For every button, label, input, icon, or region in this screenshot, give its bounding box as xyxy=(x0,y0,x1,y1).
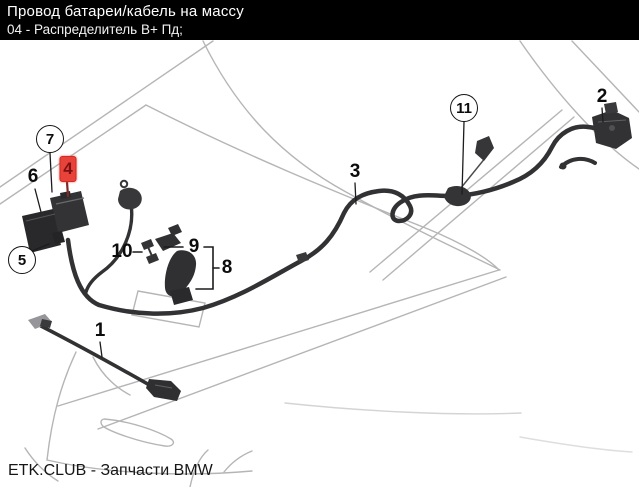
page-title: Провод батареи/кабель на массу xyxy=(7,3,244,20)
leader-7 xyxy=(50,153,52,192)
callout-4-highlighted[interactable]: 4 xyxy=(60,156,77,182)
harness-junction xyxy=(444,186,471,206)
leader-4-stem xyxy=(67,182,68,196)
clamp-part-9 xyxy=(155,233,181,251)
page-subtitle: 04 - Распределитель B+ Пд; xyxy=(7,22,183,37)
parts-diagram-canvas xyxy=(0,0,639,487)
leader-1 xyxy=(100,342,102,357)
header-bar: Провод батареи/кабель на массу 04 - Расп… xyxy=(0,0,639,40)
callout-6[interactable]: 6 xyxy=(28,166,39,188)
callout-1[interactable]: 1 xyxy=(95,320,106,342)
callout-5[interactable]: 5 xyxy=(8,246,36,274)
cable-1-connector xyxy=(146,379,181,401)
clip-part-10 xyxy=(141,239,154,250)
ring-connector xyxy=(118,188,142,210)
car-outline xyxy=(0,41,639,487)
callout-2[interactable]: 2 xyxy=(597,86,608,108)
callout-11[interactable]: 11 xyxy=(450,94,478,122)
callout-7[interactable]: 7 xyxy=(36,125,64,153)
leader-11 xyxy=(462,122,464,194)
clip-part-11-area xyxy=(475,136,494,161)
callout-9[interactable]: 9 xyxy=(189,236,200,258)
strap-eyelet xyxy=(560,163,567,170)
watermark-text: ETK.CLUB - Запчасти BMW xyxy=(8,462,213,480)
callout-3[interactable]: 3 xyxy=(350,161,361,183)
leader-lines xyxy=(32,108,603,357)
leader-6 xyxy=(35,189,41,212)
callout-8[interactable]: 8 xyxy=(222,257,233,279)
main-battery-cable xyxy=(68,127,607,314)
callout-10[interactable]: 10 xyxy=(111,241,132,263)
